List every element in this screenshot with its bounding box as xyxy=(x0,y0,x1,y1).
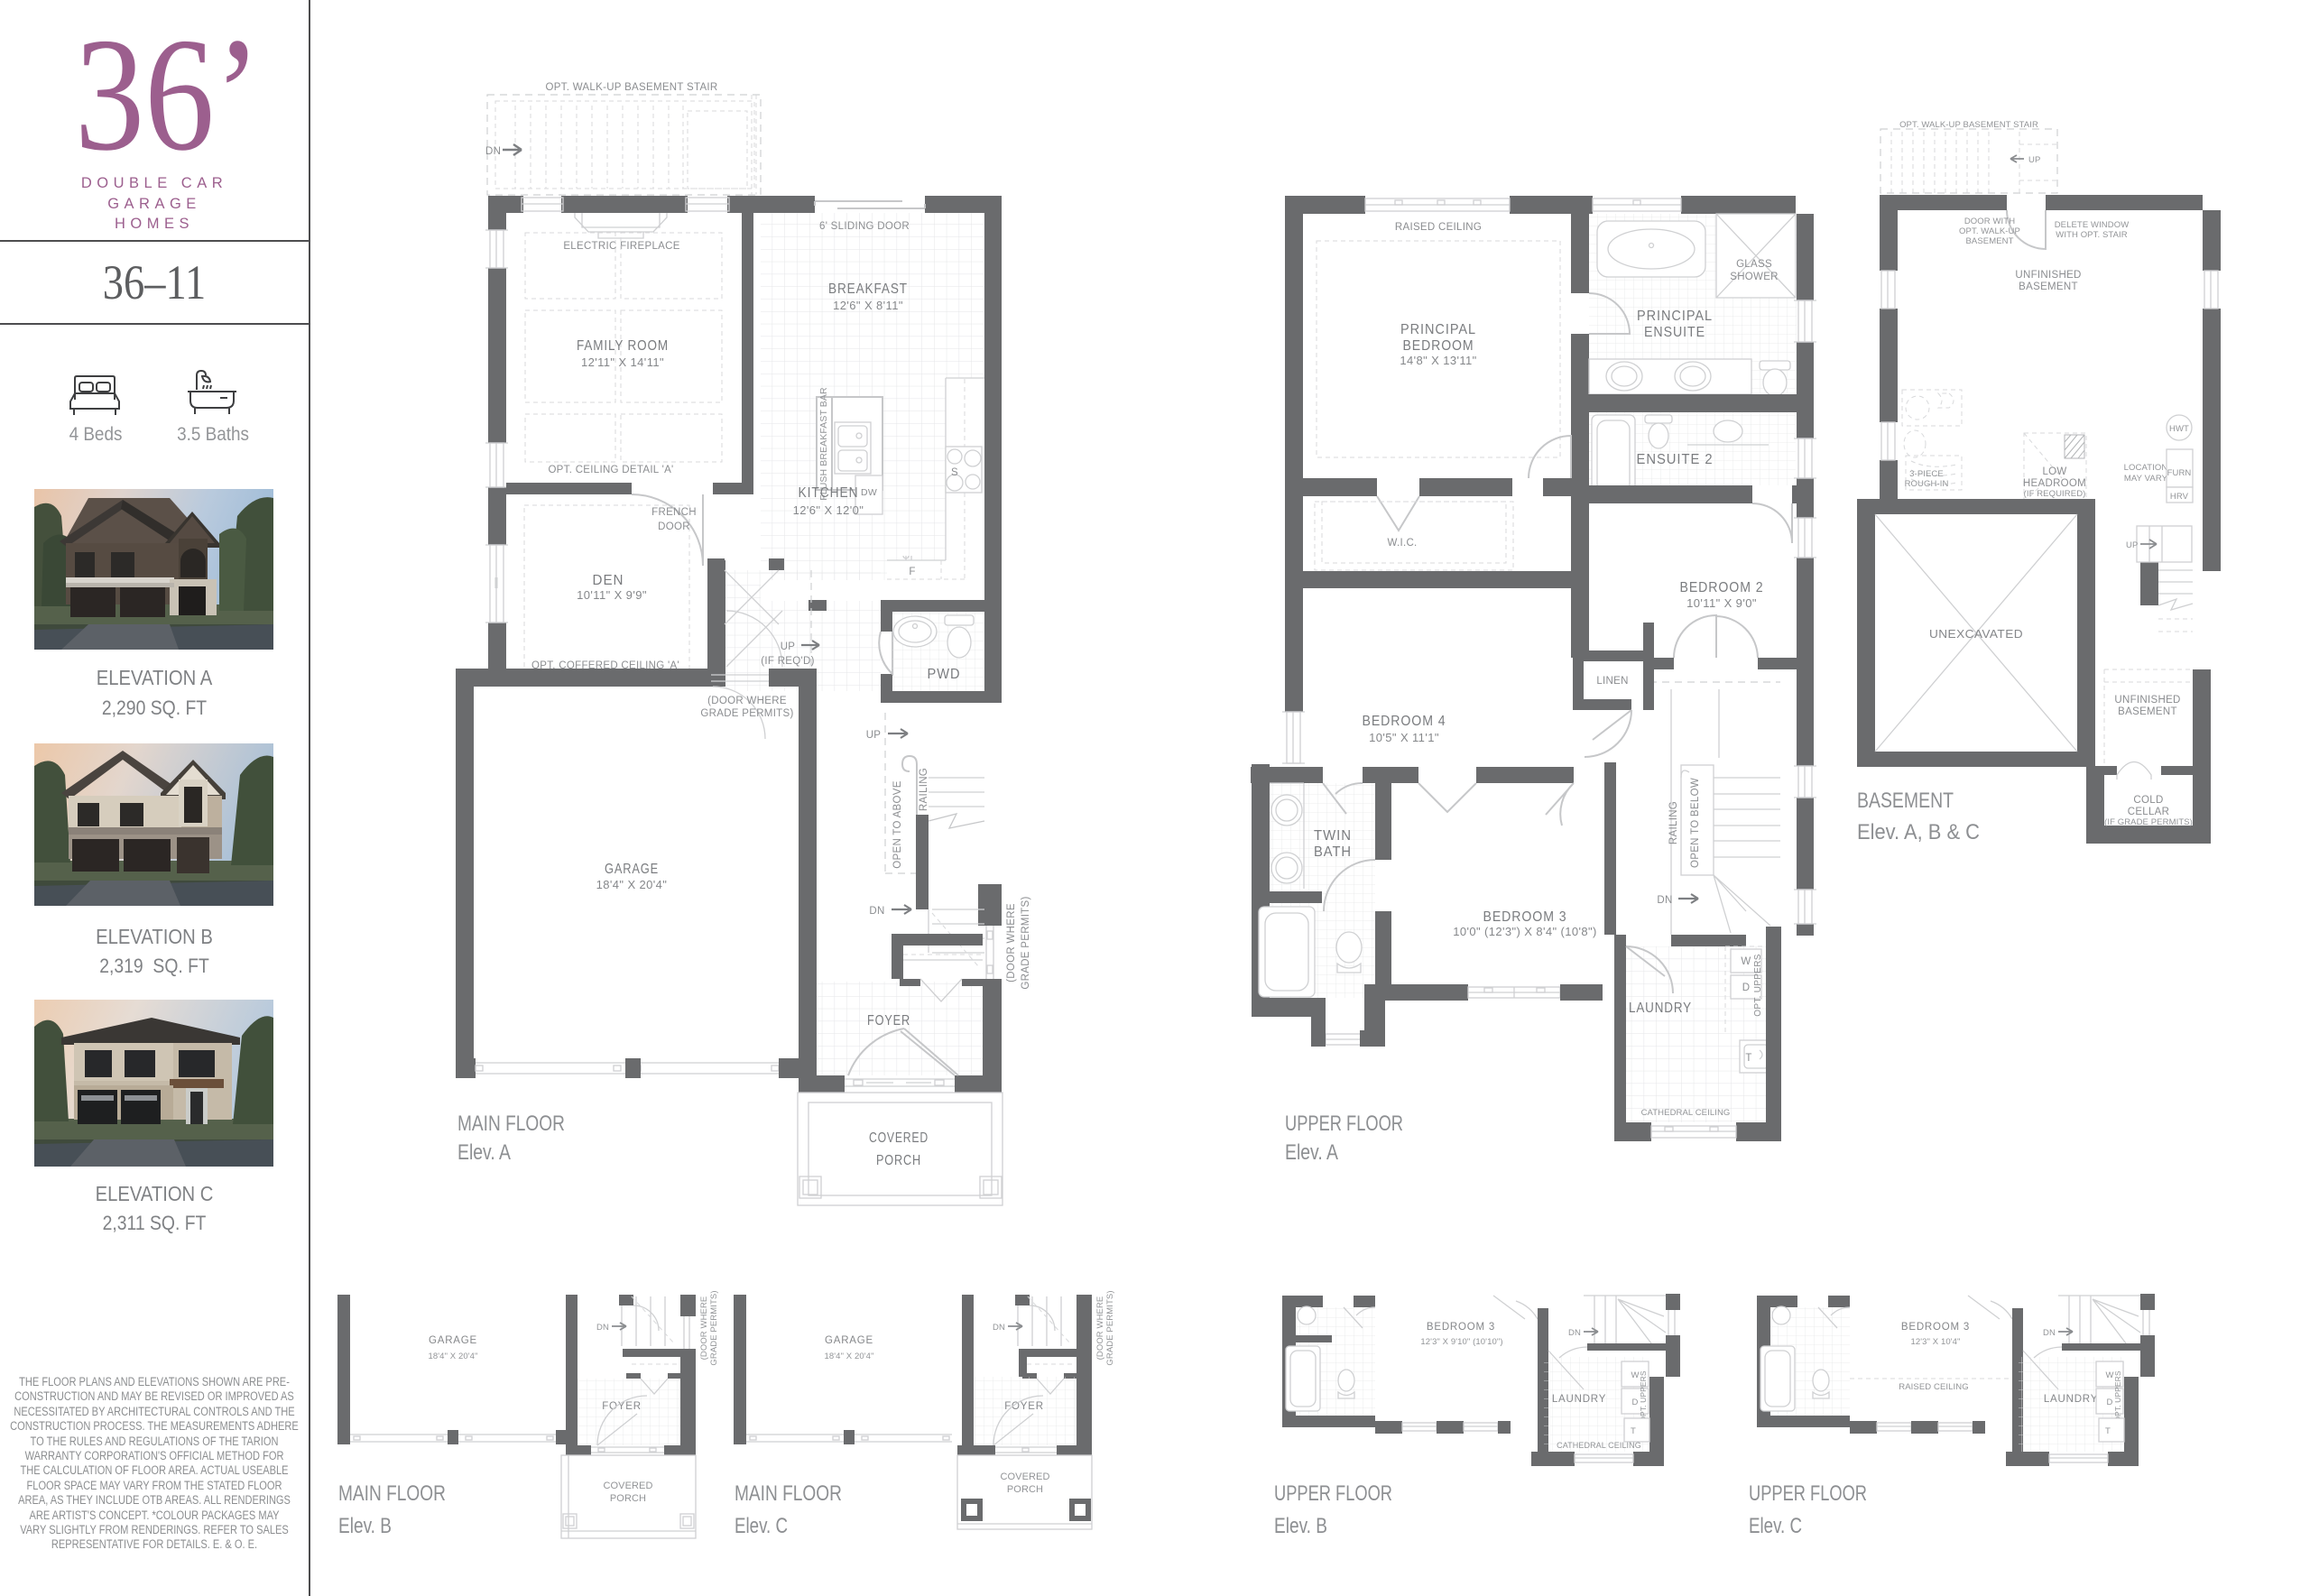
svg-text:DN: DN xyxy=(869,906,884,917)
svg-text:UP: UP xyxy=(2126,540,2138,550)
svg-text:Elev. C: Elev. C xyxy=(735,1514,788,1538)
svg-text:12'3" X 9'10" (10'10"): 12'3" X 9'10" (10'10") xyxy=(1420,1337,1502,1347)
svg-text:10'0" (12'3") X 8'4" (10'8"): 10'0" (12'3") X 8'4" (10'8") xyxy=(1453,925,1597,938)
svg-text:ENSUITE: ENSUITE xyxy=(1644,325,1705,340)
svg-text:CELLAR: CELLAR xyxy=(2128,807,2170,817)
svg-text:UP: UP xyxy=(866,730,882,741)
svg-text:LAUNDRY: LAUNDRY xyxy=(1629,1001,1692,1016)
svg-text:OPT. WALK-UP BASEMENT STAIR: OPT. WALK-UP BASEMENT STAIR xyxy=(1899,120,2038,130)
svg-text:S: S xyxy=(951,467,958,478)
svg-text:BASEMENT: BASEMENT xyxy=(2019,281,2078,292)
svg-text:PORCH: PORCH xyxy=(876,1153,921,1168)
svg-text:MAIN FLOOR: MAIN FLOOR xyxy=(338,1481,446,1506)
svg-text:PORCH: PORCH xyxy=(1007,1484,1043,1495)
svg-text:BASEMENT: BASEMENT xyxy=(1965,236,2013,246)
svg-text:DN: DN xyxy=(596,1323,609,1333)
svg-text:ROUGH-IN: ROUGH-IN xyxy=(1905,479,1949,489)
svg-text:T: T xyxy=(1745,1053,1751,1064)
svg-text:BREAKFAST: BREAKFAST xyxy=(828,281,908,297)
svg-text:12'6" X 12'0": 12'6" X 12'0" xyxy=(793,503,864,517)
svg-text:BEDROOM 3: BEDROOM 3 xyxy=(1483,909,1567,925)
svg-text:DN: DN xyxy=(2043,1328,2056,1338)
svg-text:DW: DW xyxy=(861,487,877,498)
svg-text:HWT: HWT xyxy=(2169,424,2189,434)
svg-text:FAMILY ROOM: FAMILY ROOM xyxy=(577,338,669,354)
svg-text:Elev. A, B & C: Elev. A, B & C xyxy=(1857,820,1980,844)
svg-text:12'11" X 14'11": 12'11" X 14'11" xyxy=(581,355,664,369)
svg-text:FOYER: FOYER xyxy=(867,1013,910,1029)
svg-text:BEDROOM 4: BEDROOM 4 xyxy=(1363,714,1446,729)
svg-text:HRV: HRV xyxy=(2170,492,2189,502)
svg-text:T: T xyxy=(1631,1426,1636,1436)
svg-text:RAISED CEILING: RAISED CEILING xyxy=(1395,222,1482,233)
svg-text:MAIN FLOOR: MAIN FLOOR xyxy=(457,1112,565,1136)
svg-text:(IF REQUIRED): (IF REQUIRED) xyxy=(2024,489,2086,499)
svg-text:BASEMENT: BASEMENT xyxy=(2118,706,2177,717)
svg-text:D: D xyxy=(2107,1398,2113,1407)
svg-text:OPEN TO BELOW: OPEN TO BELOW xyxy=(1690,778,1701,868)
svg-text:12'6" X 8'11": 12'6" X 8'11" xyxy=(833,299,903,312)
svg-text:LOCATION: LOCATION xyxy=(2124,463,2168,473)
svg-text:T: T xyxy=(2105,1426,2111,1436)
svg-text:W: W xyxy=(1741,956,1751,967)
svg-text:DELETE WINDOW: DELETE WINDOW xyxy=(2055,220,2130,230)
svg-text:GRADE PERMITS): GRADE PERMITS) xyxy=(1021,896,1031,989)
svg-text:FURN: FURN xyxy=(2167,468,2192,478)
svg-text:COVERED: COVERED xyxy=(869,1130,929,1146)
svg-text:3-PIECE: 3-PIECE xyxy=(1909,469,1944,479)
svg-text:MAY VARY: MAY VARY xyxy=(2124,474,2168,484)
svg-text:PORCH: PORCH xyxy=(610,1493,646,1504)
svg-text:PRINCIPAL: PRINCIPAL xyxy=(1637,309,1713,324)
svg-text:LAUNDRY: LAUNDRY xyxy=(1552,1394,1606,1405)
svg-text:COVERED: COVERED xyxy=(1000,1471,1049,1482)
svg-text:CATHEDRAL CEILING: CATHEDRAL CEILING xyxy=(1557,1441,1641,1450)
svg-text:BEDROOM 3: BEDROOM 3 xyxy=(1901,1322,1970,1333)
svg-text:FLUSH BREAKFAST BAR: FLUSH BREAKFAST BAR xyxy=(818,387,829,501)
svg-text:RAILING: RAILING xyxy=(1668,801,1679,844)
svg-text:UPPER FLOOR: UPPER FLOOR xyxy=(1285,1112,1403,1136)
svg-text:DEN: DEN xyxy=(593,573,624,588)
svg-text:ENSUITE 2: ENSUITE 2 xyxy=(1637,452,1714,467)
svg-text:OPT. WALK-UP: OPT. WALK-UP xyxy=(1959,226,2020,236)
svg-text:BATH: BATH xyxy=(1314,844,1352,860)
svg-text:BEDROOM: BEDROOM xyxy=(1403,338,1474,354)
svg-text:COLD: COLD xyxy=(2133,795,2163,806)
svg-text:UNFINISHED: UNFINISHED xyxy=(2114,695,2180,706)
svg-text:RAISED CEILING: RAISED CEILING xyxy=(1899,1382,1968,1392)
svg-text:Elev. B: Elev. B xyxy=(338,1514,392,1538)
svg-text:Elev. C: Elev. C xyxy=(1749,1514,1802,1538)
svg-text:(DOOR WHERE: (DOOR WHERE xyxy=(699,1296,709,1361)
svg-text:OPEN TO ABOVE: OPEN TO ABOVE xyxy=(892,780,903,868)
svg-text:D: D xyxy=(1742,983,1751,993)
svg-text:18'4" X 20'4": 18'4" X 20'4" xyxy=(596,878,668,891)
svg-text:FOYER: FOYER xyxy=(1004,1401,1044,1412)
svg-text:10'5" X 11'1": 10'5" X 11'1" xyxy=(1369,731,1439,744)
svg-text:GARAGE: GARAGE xyxy=(605,862,659,877)
svg-text:UNFINISHED: UNFINISHED xyxy=(2015,270,2081,281)
svg-text:D: D xyxy=(1632,1398,1639,1407)
svg-text:LINEN: LINEN xyxy=(1596,676,1628,687)
svg-text:UPPER FLOOR: UPPER FLOOR xyxy=(1274,1481,1392,1506)
svg-text:GRADE PERMITS): GRADE PERMITS) xyxy=(709,1290,719,1365)
svg-text:(DOOR WHERE: (DOOR WHERE xyxy=(1095,1296,1105,1361)
svg-text:OPT. UPPERS: OPT. UPPERS xyxy=(1753,954,1763,1016)
svg-text:18'4" X 20'4": 18'4" X 20'4" xyxy=(825,1352,874,1361)
svg-text:TWIN: TWIN xyxy=(1314,828,1352,844)
svg-text:CATHEDRAL CEILING: CATHEDRAL CEILING xyxy=(1641,1108,1731,1118)
svg-text:OPT. WALK-UP BASEMENT STAIR: OPT. WALK-UP BASEMENT STAIR xyxy=(545,82,717,93)
svg-text:W.I.C.: W.I.C. xyxy=(1387,538,1417,549)
svg-text:GRADE PERMITS): GRADE PERMITS) xyxy=(1105,1290,1115,1365)
svg-text:Elev. B: Elev. B xyxy=(1274,1514,1327,1538)
svg-text:14'8" X 13'11": 14'8" X 13'11" xyxy=(1400,354,1476,367)
svg-text:(DOOR WHERE: (DOOR WHERE xyxy=(1006,903,1017,983)
svg-text:HEADROOM: HEADROOM xyxy=(2023,478,2086,489)
svg-text:F: F xyxy=(909,567,915,577)
svg-text:Elev. A: Elev. A xyxy=(1285,1140,1339,1165)
svg-text:ELECTRIC FIREPLACE: ELECTRIC FIREPLACE xyxy=(563,241,679,252)
svg-text:RAILING: RAILING xyxy=(919,768,929,811)
svg-text:BEDROOM 3: BEDROOM 3 xyxy=(1427,1322,1495,1333)
svg-text:(IF REQ'D): (IF REQ'D) xyxy=(761,656,815,667)
svg-text:WITH OPT. STAIR: WITH OPT. STAIR xyxy=(2056,230,2127,240)
svg-text:KITCHEN: KITCHEN xyxy=(799,485,859,501)
svg-text:BASEMENT: BASEMENT xyxy=(1857,789,1954,813)
svg-text:UP: UP xyxy=(781,641,796,652)
svg-text:GARAGE: GARAGE xyxy=(429,1335,477,1346)
svg-text:OPT. CEILING DETAIL 'A': OPT. CEILING DETAIL 'A' xyxy=(548,465,673,475)
svg-text:COVERED: COVERED xyxy=(603,1481,652,1491)
svg-text:Elev. A: Elev. A xyxy=(457,1140,512,1165)
svg-text:18'4" X 20'4": 18'4" X 20'4" xyxy=(429,1352,478,1361)
svg-text:MAIN FLOOR: MAIN FLOOR xyxy=(735,1481,842,1506)
svg-text:LOW: LOW xyxy=(2042,466,2066,477)
svg-text:DOOR: DOOR xyxy=(658,521,690,532)
svg-text:UP: UP xyxy=(2028,155,2040,165)
svg-text:GARAGE: GARAGE xyxy=(825,1335,873,1346)
svg-text:SHOWER: SHOWER xyxy=(1730,272,1779,282)
svg-text:10'11" X 9'0": 10'11" X 9'0" xyxy=(1686,596,1757,610)
svg-text:DN: DN xyxy=(1657,895,1672,906)
svg-text:(DOOR WHERE: (DOOR WHERE xyxy=(707,696,787,706)
svg-text:DN: DN xyxy=(1568,1328,1581,1338)
svg-text:PRINCIPAL: PRINCIPAL xyxy=(1400,322,1476,337)
svg-text:12'3" X 10'4": 12'3" X 10'4" xyxy=(1911,1337,1961,1347)
svg-text:DN: DN xyxy=(485,146,501,157)
svg-text:OPT. UPPERS: OPT. UPPERS xyxy=(2113,1370,2122,1423)
svg-text:DN: DN xyxy=(993,1323,1005,1333)
svg-text:GLASS: GLASS xyxy=(1736,259,1772,270)
svg-text:UPPER FLOOR: UPPER FLOOR xyxy=(1749,1481,1867,1506)
svg-text:6' SLIDING DOOR: 6' SLIDING DOOR xyxy=(819,221,910,232)
svg-text:(IF GRADE PERMITS): (IF GRADE PERMITS) xyxy=(2104,817,2193,827)
svg-text:10'11" X 9'9": 10'11" X 9'9" xyxy=(577,588,647,602)
svg-text:OPT. UPPERS: OPT. UPPERS xyxy=(1639,1370,1648,1423)
svg-text:DOOR WITH: DOOR WITH xyxy=(1964,217,2015,226)
svg-text:UNEXCAVATED: UNEXCAVATED xyxy=(1929,627,2023,641)
svg-text:BEDROOM 2: BEDROOM 2 xyxy=(1680,580,1764,595)
svg-text:GRADE PERMITS): GRADE PERMITS) xyxy=(700,708,793,719)
svg-text:PWD: PWD xyxy=(928,667,961,682)
svg-text:LAUNDRY: LAUNDRY xyxy=(2044,1394,2098,1405)
